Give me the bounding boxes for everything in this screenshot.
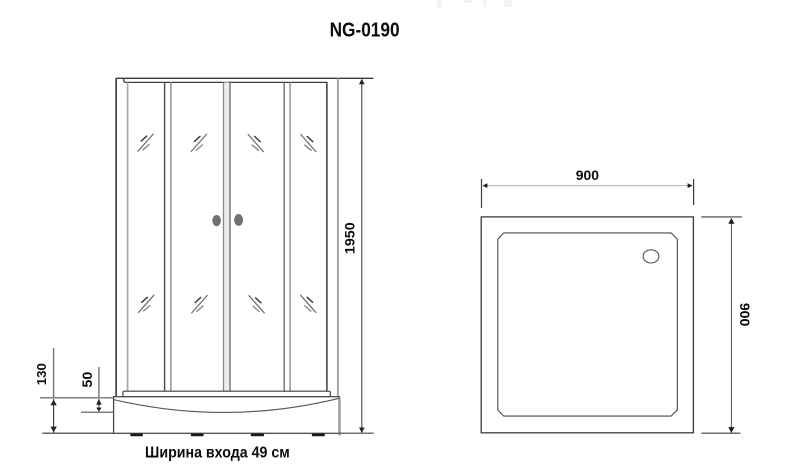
svg-text:Ширина входа 49 см: Ширина входа 49 см xyxy=(145,444,290,461)
svg-text:900: 900 xyxy=(737,303,753,327)
svg-text:130: 130 xyxy=(34,363,49,385)
svg-text:900: 900 xyxy=(576,167,599,183)
svg-text:1950: 1950 xyxy=(341,222,357,254)
svg-text:50: 50 xyxy=(79,371,95,387)
svg-text:NG-0190: NG-0190 xyxy=(330,20,400,42)
